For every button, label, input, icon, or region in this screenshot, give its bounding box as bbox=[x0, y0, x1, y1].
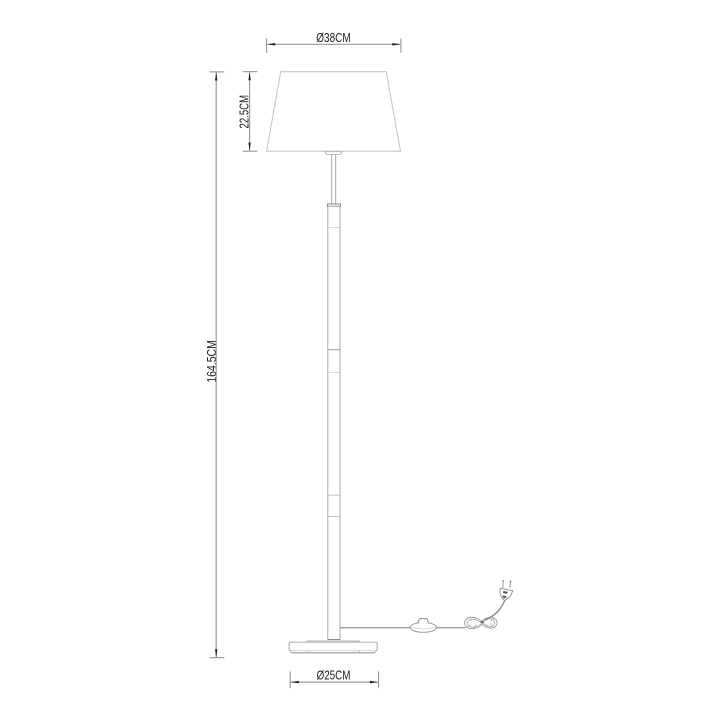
svg-text:Ø38CM: Ø38CM bbox=[316, 31, 350, 45]
svg-text:Ø25CM: Ø25CM bbox=[317, 669, 351, 683]
